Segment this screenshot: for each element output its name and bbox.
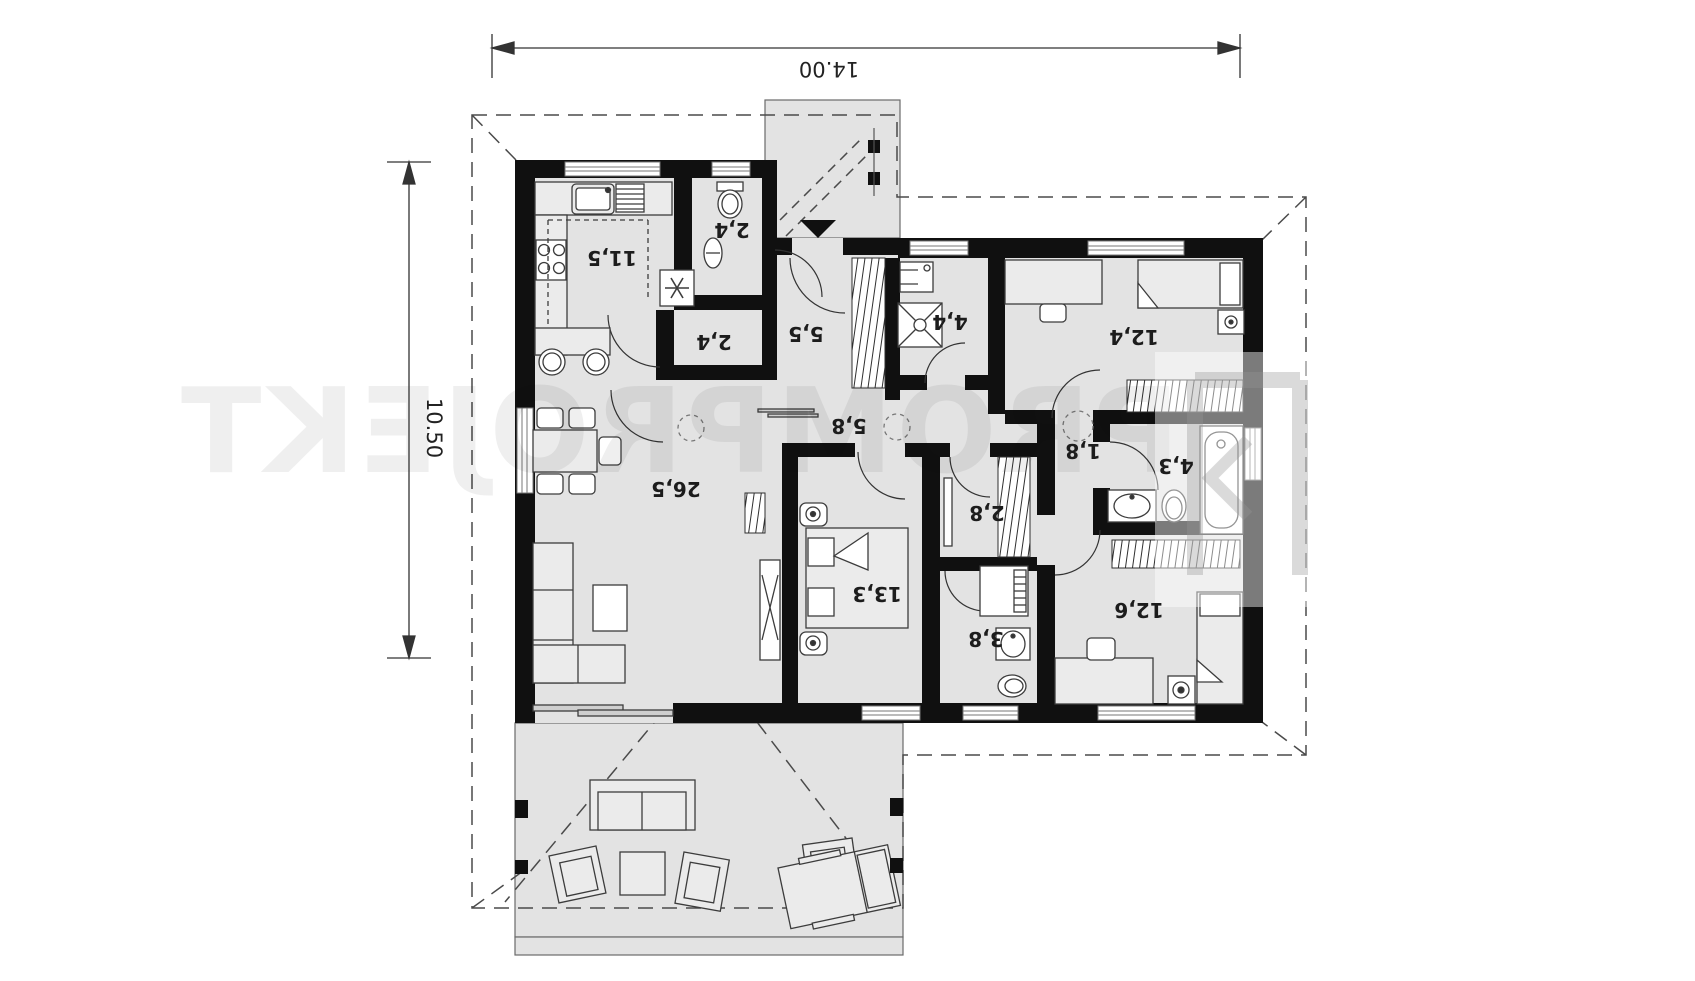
wall-bath2-east-b [1037,565,1055,723]
dimension-left-label: 10.50 [422,398,446,458]
terrace-sofa [590,780,695,830]
window-bedroom3-south [1098,706,1195,720]
dim-arrow-top [403,162,415,184]
roof-hip-top-left [472,115,516,160]
coffee-table [593,585,627,631]
wc-toilet [717,182,743,218]
terrace-chair [549,846,606,903]
wall-wing-south [898,703,1263,723]
room-label-wc: 2,4 [714,218,749,242]
terrace-chair [675,852,729,911]
room-label-bedroom1: 12,4 [1109,325,1158,349]
dimension-top-label: 14.00 [799,57,859,81]
room-label-bathroom1: 4,3 [1158,454,1193,478]
dimension-top [492,34,1240,78]
stove [536,240,566,280]
dim-arrow-right [1218,42,1240,54]
dim-arrow-left [492,42,514,54]
floor-plan-drawing: PROMPROJEKT 14.00 10.50 11,5 2,4 2,4 5,5… [0,0,1695,981]
window-wc [712,162,750,176]
roof-hip-bottom-right [1262,722,1306,755]
window-bath2-south [963,706,1018,720]
room-label-hall: 5,5 [788,322,823,346]
bath2-washer [980,566,1028,616]
room-label-bedroom3: 12,6 [1114,598,1163,622]
tv-cabinet [760,560,780,660]
room-label-closet: 2,8 [969,501,1004,525]
window-bedroom2-south [862,706,920,720]
roof-hip-top-right [1262,197,1306,240]
porch-slab [765,100,900,238]
room-label-pantry: 2,4 [696,330,731,354]
room-label-living: 26,5 [651,477,700,501]
nightstand-bedroom3 [1168,676,1195,704]
room-label-bedroom2: 13,3 [852,582,901,606]
room-label-bathroom2: 3,8 [968,627,1003,651]
window-utility [910,241,968,255]
fridge [660,270,694,306]
bath2-toilet [998,675,1026,697]
window-bedroom1 [1088,241,1184,255]
wall-hall-north-b [843,238,900,255]
room-label-kitchen: 11,5 [587,246,636,270]
bed-bedroom3 [1197,592,1243,704]
wall-pantry-east [762,178,777,380]
room-label-inner-hall: 1,8 [1065,439,1100,463]
washing-machine [900,262,933,292]
room-label-utility: 4,4 [932,310,967,334]
wall-hall-north-a [762,238,792,255]
dim-arrow-bottom [403,636,415,658]
room-label-corridor: 5,8 [831,414,866,438]
nightstand-b [800,632,827,655]
window-kitchen [565,162,660,176]
dish-rack [616,184,644,212]
bed-bedroom2 [806,528,908,628]
terrace-table [620,852,665,895]
nightstand-a [800,503,827,526]
floor-plan-page: PROMPROJEKT 14.00 10.50 11,5 2,4 2,4 5,5… [0,0,1695,981]
kitchen-sink [572,184,614,214]
bed-bedroom1 [1138,260,1243,308]
nightstand-bedroom1 [1218,310,1244,334]
